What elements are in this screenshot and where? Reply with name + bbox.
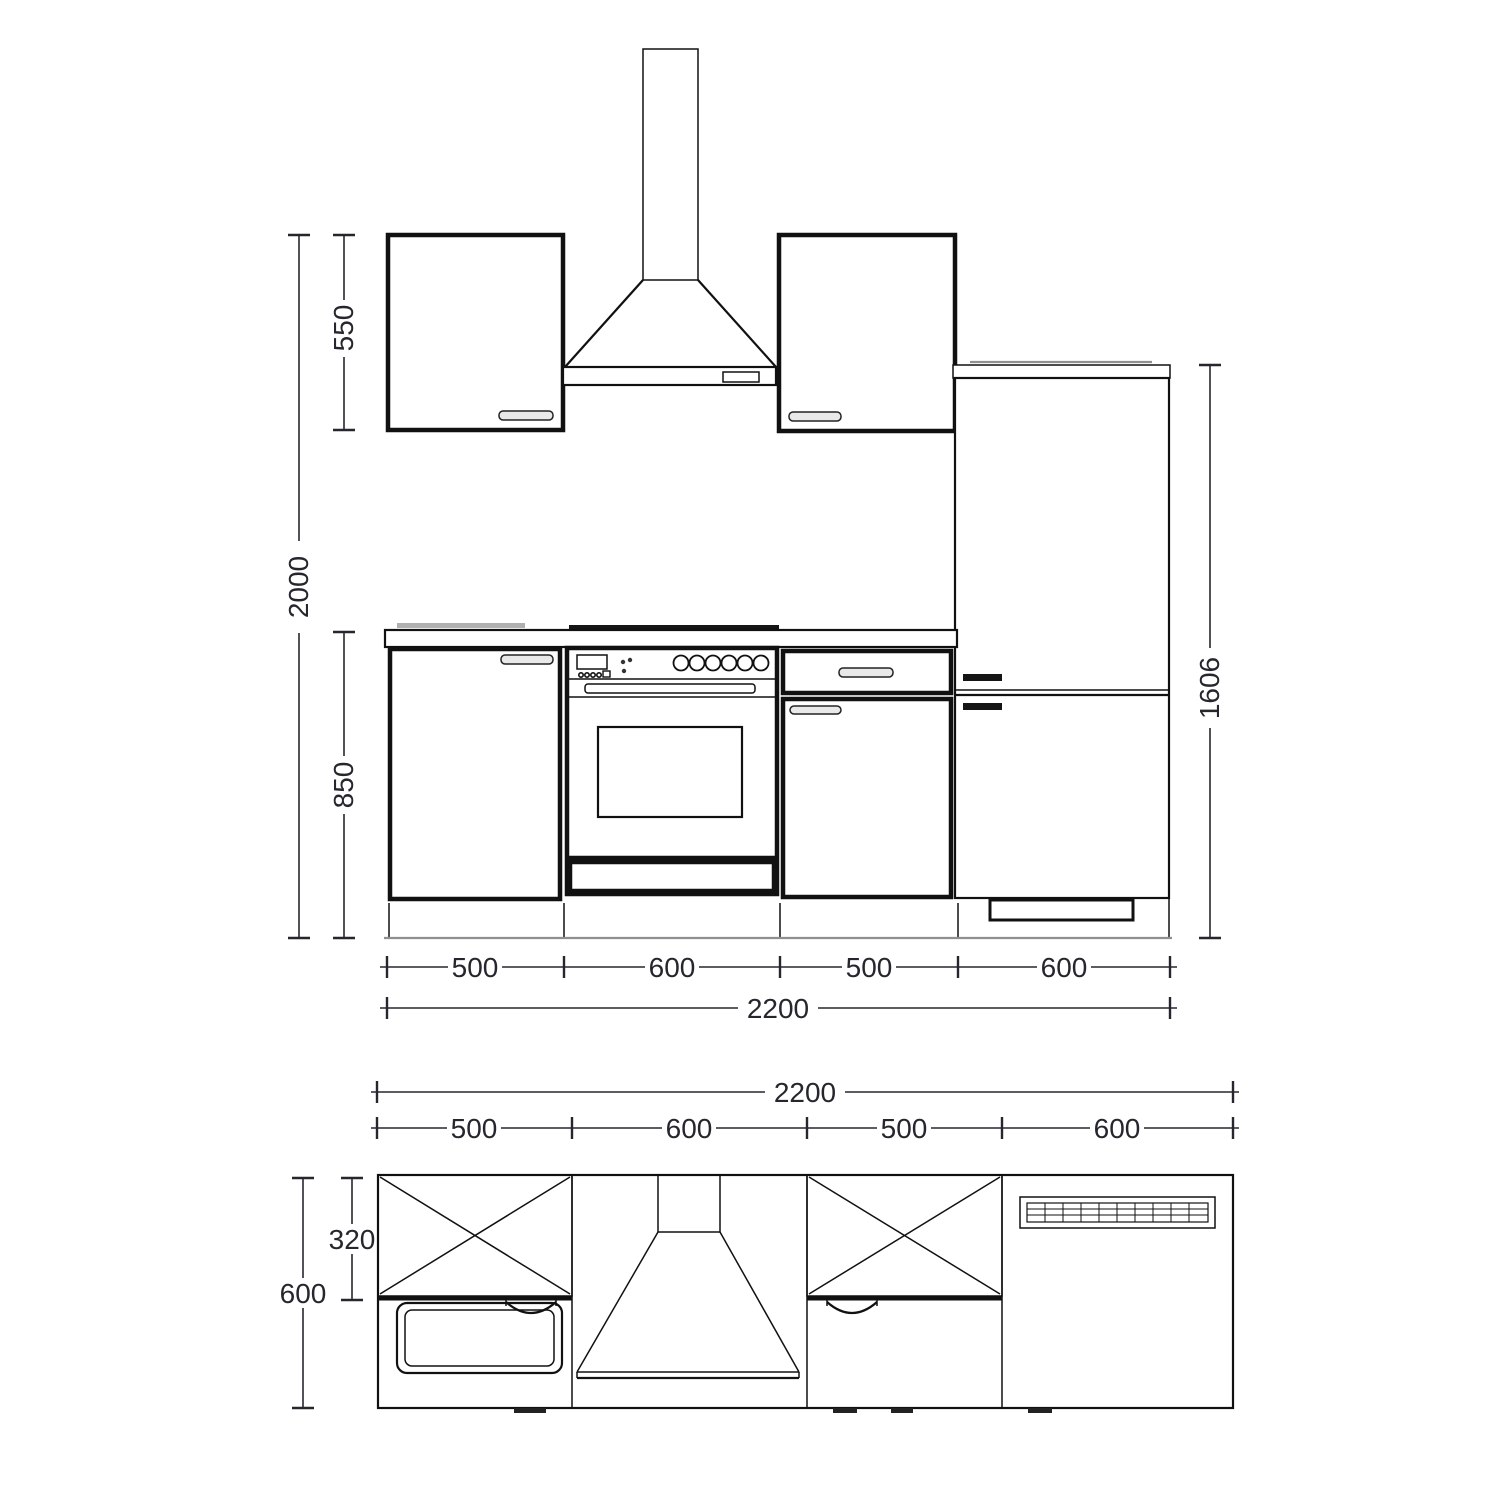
elevation-view: 2000 550 850 1606	[283, 49, 1226, 1024]
dim-label-seg4: 600	[1041, 952, 1088, 983]
dim-base-height: 850	[328, 632, 359, 938]
dim-label-seg2: 600	[649, 952, 696, 983]
dim-label-plan-total-width: 2200	[774, 1077, 836, 1108]
dim-label-plan-wall-depth: 320	[329, 1224, 376, 1255]
hood-switch	[723, 372, 759, 382]
oven-unit	[567, 648, 777, 894]
hood-chimney	[643, 49, 698, 280]
oven-display	[577, 655, 607, 669]
worktop	[385, 623, 957, 647]
sink-base-cabinet	[390, 649, 560, 899]
dim-elevation-total-width: 2200	[380, 993, 1177, 1024]
dim-label-base-height: 850	[328, 762, 359, 809]
dim-label-plan-seg3: 500	[881, 1113, 928, 1144]
cooker-hood	[563, 49, 776, 385]
fridge-top-panel	[953, 365, 1170, 378]
base-drawer-handle	[839, 668, 893, 677]
sink-base-handle	[501, 655, 553, 664]
fridge-body	[955, 378, 1169, 898]
fridge-lower-handle	[963, 703, 1002, 710]
dim-fridge-height: 1606	[1194, 365, 1226, 938]
drawer-base-cabinet	[783, 651, 951, 897]
dim-plan-segments: 500 600 500 600	[371, 1113, 1239, 1144]
dim-plan-total-width: 2200	[371, 1077, 1239, 1108]
kitchen-technical-drawing: 2000 550 850 1606	[0, 0, 1500, 1500]
worktop-drainer-edge	[397, 623, 525, 628]
oven-bottom-drawer	[570, 862, 774, 891]
dim-label-wall-cabinet-height: 550	[328, 305, 359, 352]
dim-label-total-height: 2000	[283, 556, 314, 618]
base-door-handle	[790, 706, 841, 714]
dim-elevation-segments: 500 600 500 600	[380, 952, 1177, 983]
plan-sink-inner	[405, 1310, 554, 1366]
oven-window	[598, 727, 742, 817]
wall-cabinet-right	[779, 235, 955, 431]
plan-view: 2200 500 600 500 600	[280, 1077, 1239, 1413]
fridge-plinth-vent	[990, 900, 1133, 920]
dim-total-height: 2000	[283, 235, 314, 938]
oven-door-handle	[585, 684, 755, 693]
dim-label-total-width: 2200	[747, 993, 809, 1024]
dim-label-plan-seg2: 600	[666, 1113, 713, 1144]
wall-cabinet-left	[388, 235, 563, 430]
hood-flare-left	[565, 280, 643, 367]
wall-cabinet-left-handle	[499, 411, 553, 420]
drawing-svg: 2000 550 850 1606	[0, 0, 1500, 1500]
hood-flare-right	[698, 280, 776, 367]
worktop-band	[385, 630, 957, 647]
dim-label-seg3: 500	[846, 952, 893, 983]
dim-label-plan-depth: 600	[280, 1278, 327, 1309]
dim-plan-depth: 600	[280, 1178, 327, 1408]
dim-label-fridge-height: 1606	[1194, 657, 1225, 719]
dim-wall-cabinet-height: 550	[328, 235, 359, 430]
dim-label-plan-seg1: 500	[451, 1113, 498, 1144]
dim-label-seg1: 500	[452, 952, 499, 983]
base-door	[783, 699, 951, 897]
wall-cabinet-left-door	[388, 235, 563, 430]
fridge-upper-handle	[963, 674, 1002, 681]
dim-plan-wall-depth: 320	[329, 1178, 376, 1300]
wall-cabinet-right-handle	[789, 412, 841, 421]
wall-cabinet-right-door	[779, 235, 955, 431]
fridge-unit	[953, 362, 1170, 920]
dim-label-plan-seg4: 600	[1094, 1113, 1141, 1144]
sink-base-door	[390, 649, 560, 899]
